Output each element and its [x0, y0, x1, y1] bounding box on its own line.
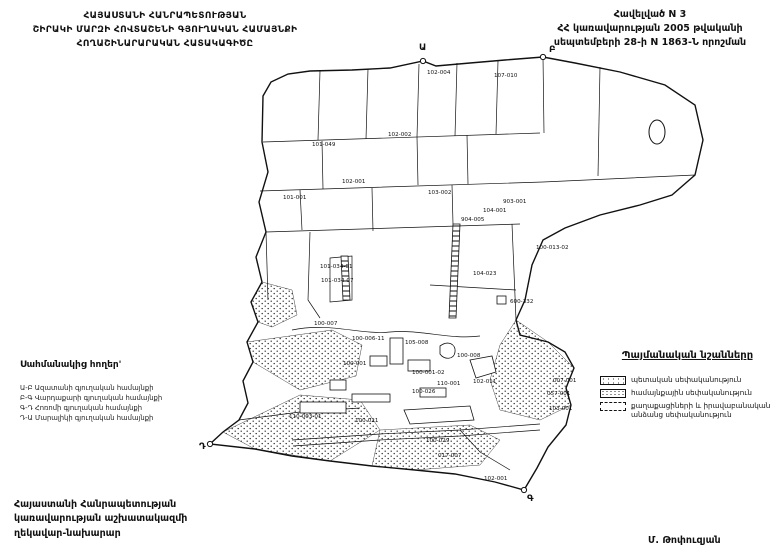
corner-letter: Դ — [199, 442, 206, 452]
boundary-node — [207, 441, 212, 446]
parcel-code-label: 903-001 — [503, 199, 527, 205]
legend-bordering-lands: Սահմանակից հողեր' Ա-Բ Ազատանի գյուղական … — [20, 360, 240, 423]
legend-left-item: Գ-Դ Հոռոմի գյուղական համայնքի — [20, 404, 240, 414]
parcel-code-label: 110-003-01 — [289, 414, 322, 420]
signature-name: Մ. Թոփուզյան — [648, 535, 721, 546]
parcel-code-label: 904-005 — [461, 217, 485, 223]
parcel-code-label: 104-001 — [483, 208, 507, 214]
legend-left-item: Ա-Բ Ազատանի գյուղական համայնքի — [20, 384, 240, 394]
parcel-code-label: 017-007 — [438, 453, 462, 459]
legend-left-item: Դ-Ա Մարալիկի գյուղական համայնքի — [20, 414, 240, 424]
legend-right-label: պետական սեփականություն — [631, 375, 741, 384]
legend-right-item: քաղաքացիների և իրավաբանական անձանց սեփակ… — [600, 401, 775, 419]
legend-left-items: Ա-Բ Ազատանի գյուղական համայնքիԲ-Գ Վարդաք… — [20, 384, 240, 423]
dots-dense-swatch-icon — [600, 389, 626, 398]
footer-line-1: Հայաստանի Հանրապետության — [14, 498, 187, 512]
legend-right-item: պետական սեփականություն — [600, 375, 775, 385]
dashed-empty-swatch-icon — [600, 402, 626, 411]
parcel-code-label: 102-001 — [484, 476, 508, 482]
parcel-code-label: 110-001 — [437, 381, 461, 387]
legend-left-title: Սահմանակից հողեր' — [20, 360, 240, 370]
parcel-code-label: 102-001 — [342, 179, 366, 185]
parcel-code-label: 100-001-02 — [412, 370, 445, 376]
hatched-strips — [341, 224, 460, 318]
parcel-code-label: 100-007 — [314, 321, 338, 327]
parcel-code-label: 107-010 — [494, 73, 518, 79]
parcel-code-label: 103-001 — [549, 406, 573, 412]
parcel-code-label: 057-001 — [547, 391, 571, 397]
signatory-title: Հայաստանի Հանրապետության կառավարության ա… — [14, 498, 187, 541]
parcel-code-label: 100-029 — [426, 438, 450, 444]
boundary-node — [420, 58, 425, 63]
parcel-code-label: 100-001 — [343, 361, 367, 367]
legend-right-item: համայնքային սեփականություն — [600, 388, 775, 398]
parcel-code-label: 100-008 — [457, 353, 481, 359]
footer-line-3: ղեկավար-նախարար — [14, 527, 187, 541]
boundary-node — [540, 54, 545, 59]
legend-right-label: համայնքային սեփականություն — [631, 388, 752, 397]
parcel-code-label: 100-006-11 — [352, 336, 385, 342]
corner-letter: Բ — [549, 45, 556, 55]
legend-right-label: քաղաքացիների և իրավաբանական անձանց սեփակ… — [631, 401, 775, 419]
parcel-code-label: 101-049 — [312, 142, 336, 148]
dots-sparse-swatch-icon — [600, 376, 626, 385]
parcel-code-label: 100-013-02 — [536, 245, 569, 251]
parcel-code-label: 105-008 — [405, 340, 429, 346]
parcel-code-label: 100-021 — [355, 418, 379, 424]
parcel-code-label: 100-026 — [412, 389, 436, 395]
corner-letter: Գ — [527, 494, 534, 504]
small-symbol — [497, 296, 506, 304]
parcel-code-label: 007-001 — [553, 378, 577, 384]
parcel-code-label: 600-332 — [510, 299, 533, 305]
legend-right-items: պետական սեփականությունհամայնքային սեփակա… — [600, 375, 775, 419]
parcel-code-label: 104-023 — [473, 271, 497, 277]
cadastral-map: ԱԲԳԴ 102-004107-010102-002101-049102-001… — [0, 0, 778, 557]
boundary-node — [521, 487, 526, 492]
parcel-code-label: 101-001 — [283, 195, 307, 201]
parcel-code-label: 103-002 — [428, 190, 451, 196]
footer-line-2: կառավարության աշխատակազմի — [14, 512, 187, 526]
stippled-zones — [223, 282, 574, 470]
oval-feature — [649, 120, 665, 144]
legend-conventional-signs: Պայմանական նշանները պետական սեփականությո… — [600, 350, 775, 422]
legend-left-item: Բ-Գ Վարդաքարի գյուղական համայնքի — [20, 394, 240, 404]
parcel-code-label: 101-034-07 — [321, 278, 354, 284]
parcel-code-label: 101-034-01 — [320, 264, 353, 270]
parcel-code-label: 102-002 — [388, 132, 411, 138]
parcel-code-label: 102-004 — [427, 70, 451, 76]
legend-right-title: Պայմանական նշանները — [600, 350, 775, 361]
corner-letter: Ա — [419, 43, 426, 53]
parcel-code-label: 102-011 — [473, 379, 497, 385]
